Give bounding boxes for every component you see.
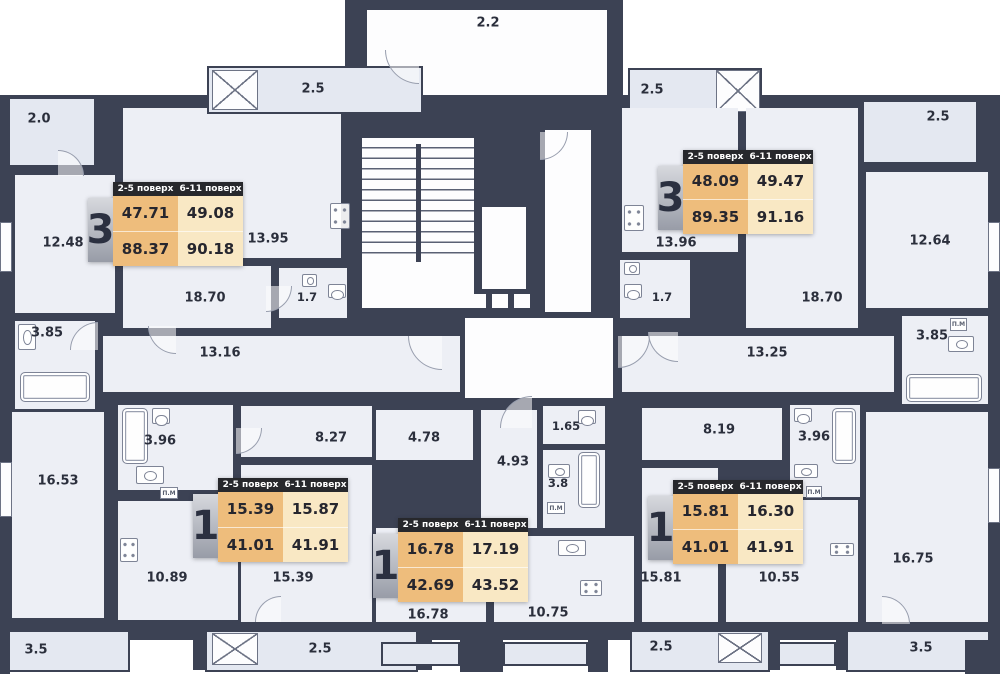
badge-area-value: 17.19 [463,532,528,567]
room-label: 16.78 [407,608,448,623]
badge-area-value: 90.18 [178,231,243,267]
room-label: 3.85 [31,326,63,341]
badge-area-table: 2-5 поверх 6-11 поверх 48.09 89.35 49.47… [683,150,813,234]
room-label: 4.78 [408,431,440,446]
window-x-icon [212,633,258,665]
badge-floor-range-label: 2-5 поверх [218,478,283,492]
badge-area-value: 15.87 [283,492,348,527]
badge-floor-range-label: 2-5 поверх [673,480,738,494]
room-label-balcony: 2.5 [649,640,672,655]
room-label: 16.75 [892,552,933,567]
room-label: 1.7 [297,290,317,304]
room-label: 13.16 [199,346,240,361]
badge-area-table: 2-5 поверх 6-11 поверх 15.81 41.01 16.30… [673,480,803,564]
badge-floor-range-label: 2-5 поверх [398,518,463,532]
badge-area-value: 47.71 [113,196,178,231]
room-label: 16.53 [37,474,78,489]
room-label: 8.19 [703,423,735,438]
room-label: 3.85 [916,329,948,344]
badge-floor-range-label: 6-11 поверх [463,518,528,532]
apartment-badge-1-bottom-middle: 1 2-5 поверх 6-11 поверх 16.78 42.69 17.… [373,518,528,602]
room-label: 12.64 [909,234,950,249]
badge-area-value: 41.91 [738,529,803,565]
window-icon [0,462,12,517]
apartment-room-count: 1 [648,496,673,560]
loggia-window [503,642,588,666]
room-label-balcony: 2.5 [640,83,663,98]
vent-shaft [470,294,486,308]
badge-area-value: 88.37 [113,231,178,267]
room-16-75 [866,412,988,622]
stairwell [362,138,474,308]
sink-icon [136,466,164,484]
balcony-2-0 [8,97,96,167]
room-label: 8.27 [315,431,347,446]
apartment-badge-1-bottom-left: 1 2-5 поверх 6-11 поверх 15.39 41.01 15.… [193,478,348,562]
badge-area-value: 15.39 [218,492,283,527]
badge-floor-ranges: 2-5 поверх 6-11 поверх [398,518,528,532]
room-label-balcony: 2.5 [926,110,949,125]
badge-area-value: 91.16 [748,199,813,235]
badge-floor-ranges: 2-5 поверх 6-11 поверх [673,480,803,494]
bathtub-icon [906,374,982,402]
sink-icon [558,540,586,556]
stove-icon [330,203,350,229]
bathtub-icon [20,372,90,402]
room-label: 15.39 [272,571,313,586]
room-label: 13.25 [746,346,787,361]
window-x-icon [716,70,760,112]
vent-shaft [492,294,508,308]
room-label: 3.8 [548,476,568,490]
badge-area-value: 15.81 [673,494,738,529]
sink-icon [794,464,818,478]
vent-shaft [514,294,530,308]
badge-floor-range-label: 2-5 поверх [113,182,178,196]
toilet-icon [794,408,812,422]
room-label-balcony: 2.5 [308,642,331,657]
toilet-icon [152,408,170,424]
toilet-icon [578,410,596,424]
apartment-badge-3-right: 3 2-5 поверх 6-11 поверх 48.09 89.35 49.… [658,150,813,234]
entrance-lobby [465,318,613,398]
stove-icon [830,543,854,556]
room-label: 13.96 [655,236,696,251]
room-16-53 [12,412,104,618]
loggia-window [381,642,460,666]
room-label-balcony: 2.5 [301,82,324,97]
window-x-icon [212,70,258,110]
room-label: 10.89 [146,571,187,586]
badge-area-value: 41.91 [283,527,348,563]
apartment-room-count: 3 [658,166,683,230]
wall-pier [588,640,608,672]
badge-area-value: 43.52 [463,567,528,603]
badge-area-table: 2-5 поверх 6-11 поверх 47.71 88.37 49.08… [113,182,243,266]
badge-area-value: 41.01 [218,527,283,563]
badge-floor-range-label: 6-11 поверх [283,478,348,492]
badge-area-value: 42.69 [398,567,463,603]
room-label: 13.95 [247,232,288,247]
room-label: 12.48 [42,236,83,251]
badge-floor-range-label: 6-11 поверх [738,480,803,494]
badge-floor-range-label: 6-11 поверх [178,182,243,196]
badge-area-value: 49.47 [748,164,813,199]
washing-machine-icon: П.М [160,487,178,499]
apartment-badge-1-bottom-right: 1 2-5 поверх 6-11 поверх 15.81 41.01 16.… [648,480,803,564]
room-label-balcony: 3.5 [24,643,47,658]
badge-floor-range-label: 2-5 поверх [683,150,748,164]
room-label: 18.70 [801,291,842,306]
stair-stringer [416,144,421,262]
washing-machine-icon: П.М [547,502,565,514]
badge-floor-ranges: 2-5 поверх 6-11 поверх [683,150,813,164]
room-label: 1.65 [552,419,580,433]
stove-icon [120,538,138,562]
badge-area-table: 2-5 поверх 6-11 поверх 15.39 41.01 15.87… [218,478,348,562]
elevator-shaft [482,207,526,289]
apartment-room-count: 3 [88,198,113,262]
badge-area-value: 16.78 [398,532,463,567]
room-label-balcony: 3.5 [909,641,932,656]
wall-pier [460,640,503,672]
badge-area-value: 89.35 [683,199,748,235]
wall-corner-step [965,640,1000,674]
badge-floor-ranges: 2-5 поверх 6-11 поверх [218,478,348,492]
window-icon [988,222,1000,272]
bathtub-icon [832,408,856,464]
badge-area-value: 49.08 [178,196,243,231]
apartment-room-count: 1 [373,534,398,598]
stove-icon [624,205,644,231]
sink-icon [302,274,317,287]
room-label: 10.75 [527,606,568,621]
room-label-balcony: 2.0 [27,112,50,127]
sink-icon [948,336,974,352]
room-label: 1.7 [652,290,672,304]
wall-pier [836,640,846,670]
apartment-room-count: 1 [193,494,218,558]
apartment-badge-3-left: 3 2-5 поверх 6-11 поверх 47.71 88.37 49.… [88,182,243,266]
room-label-vestibule: 2.2 [476,16,499,31]
badge-area-value: 48.09 [683,164,748,199]
badge-floor-ranges: 2-5 поверх 6-11 поверх [113,182,243,196]
room-label: 4.93 [497,455,529,470]
badge-floor-range-label: 6-11 поверх [748,150,813,164]
window-icon [988,468,1000,523]
room-label: 3.96 [798,430,830,445]
window-icon [0,222,12,272]
badge-area-table: 2-5 поверх 6-11 поверх 16.78 42.69 17.19… [398,518,528,602]
room-label: 15.81 [640,571,681,586]
room-label: 18.70 [184,291,225,306]
stove-icon [580,580,602,596]
bathtub-icon [578,452,600,508]
washing-machine-icon: П.М [950,318,967,331]
window-x-icon [718,633,762,663]
floor-plan: П.М П.М П.М П.М 2.2 2.5 2.5 2.0 2.5 12.4… [0,0,1000,676]
room-label: 10.55 [758,571,799,586]
badge-area-value: 16.30 [738,494,803,529]
badge-area-value: 41.01 [673,529,738,565]
balcony-2-5-far-right [862,100,978,164]
loggia-window [778,642,836,666]
toilet-icon [624,284,642,298]
sink-icon [624,262,640,275]
room-label: 3.96 [144,434,176,449]
washing-machine-icon: П.М [806,486,822,498]
toilet-icon [328,284,346,298]
